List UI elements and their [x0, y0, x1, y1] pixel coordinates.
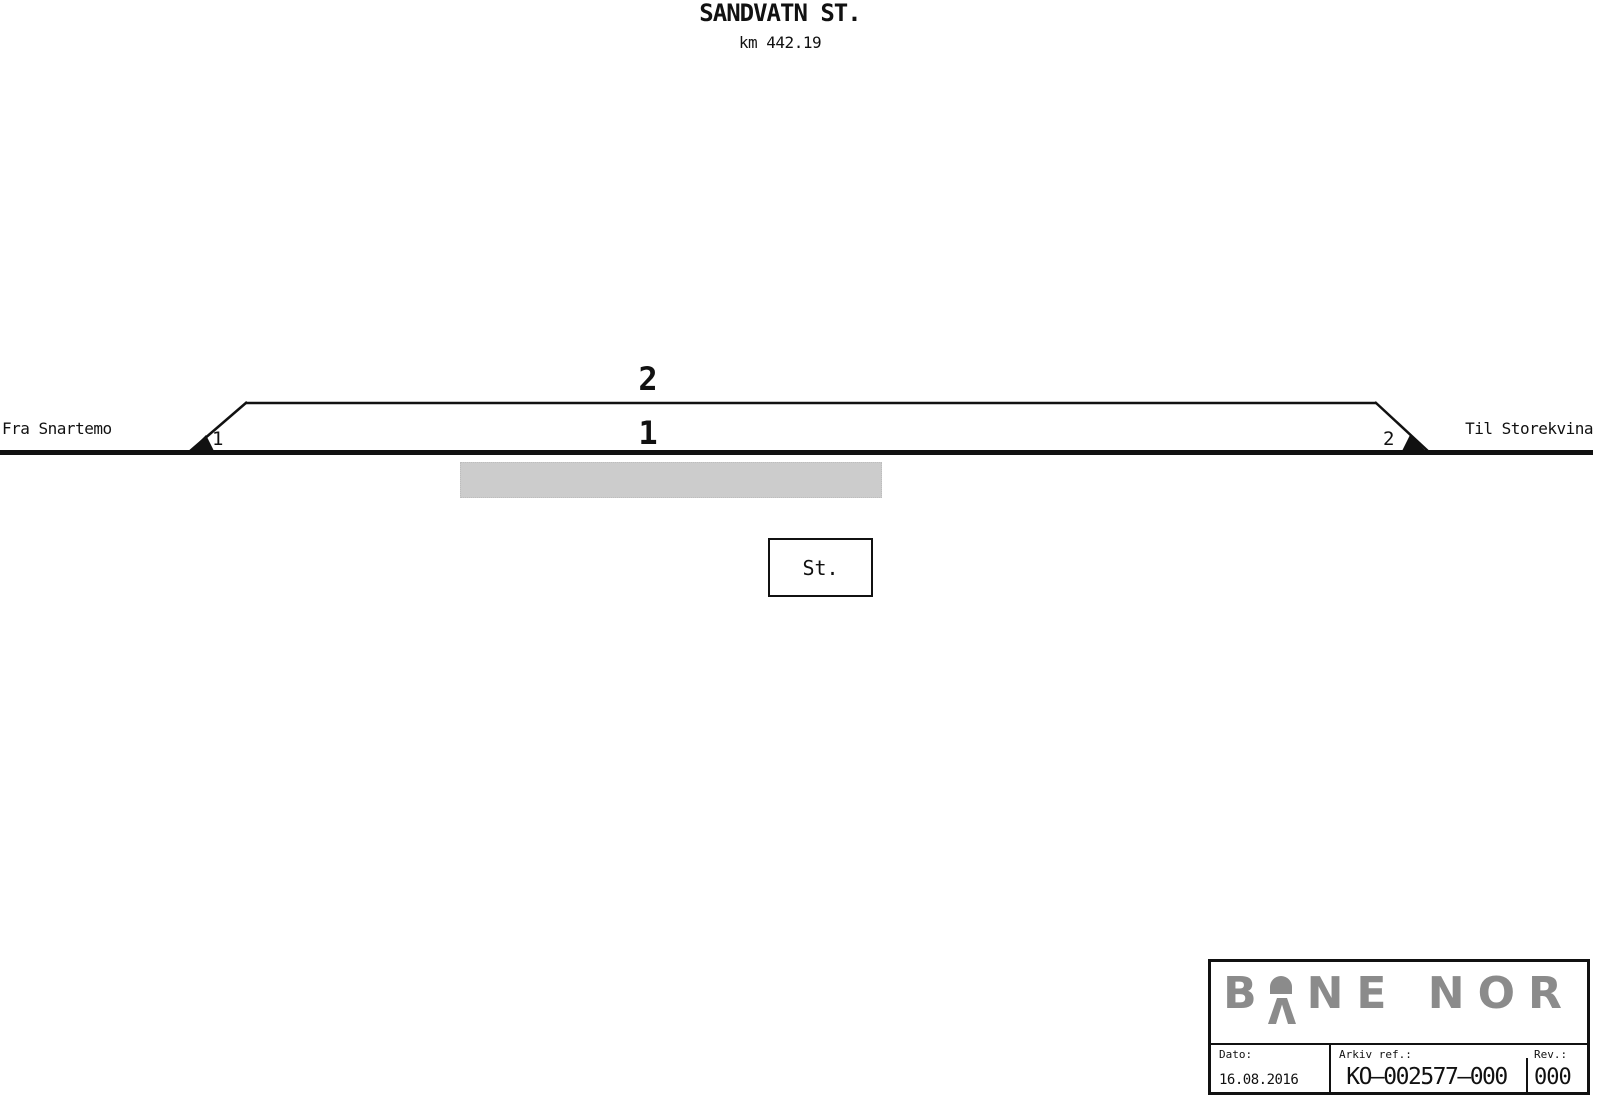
switch-2-number: 2 [1383, 429, 1394, 449]
switch-1-marker [188, 435, 215, 453]
track-2-number: 2 [638, 364, 657, 394]
revision-label: Rev.: [1534, 1048, 1567, 1061]
direction-label-to: Til Storekvina [1465, 419, 1593, 438]
date-cell: Dato: 16.08.2016 [1211, 1045, 1331, 1092]
archive-ref-cell: Arkiv ref.: KO–002577–000 [1331, 1045, 1526, 1092]
title-block: B NE NOR Dato: 16.08.2016 Arkiv ref.: KO… [1208, 959, 1590, 1095]
date-label: Dato: [1219, 1048, 1252, 1061]
platform [460, 462, 882, 498]
drawing-sheet: SANDVATN ST. km 442.19 Fra Snartemo Til … [0, 0, 1600, 1100]
revision-divider [1526, 1058, 1528, 1092]
station-building-box: St. [768, 538, 873, 597]
logo-text-right: NE NOR [1307, 972, 1575, 1016]
archive-ref-label: Arkiv ref.: [1339, 1048, 1412, 1061]
bane-nor-logo: B NE NOR [1223, 972, 1575, 1027]
title-block-fields: Dato: 16.08.2016 Arkiv ref.: KO–002577–0… [1211, 1043, 1587, 1092]
logo-text-left: B [1223, 972, 1270, 1016]
revision-cell: Rev.: 000 [1526, 1045, 1585, 1092]
station-building-label: St. [802, 556, 838, 580]
track-1-number: 1 [638, 418, 657, 448]
bane-nor-logomark-icon [1267, 975, 1297, 1027]
direction-label-from: Fra Snartemo [2, 419, 112, 438]
logo-row: B NE NOR [1211, 962, 1587, 1043]
date-value: 16.08.2016 [1219, 1072, 1298, 1088]
archive-ref-value: KO–002577–000 [1331, 1064, 1522, 1090]
revision-value: 000 [1534, 1065, 1571, 1090]
switch-1-number: 1 [212, 429, 223, 449]
